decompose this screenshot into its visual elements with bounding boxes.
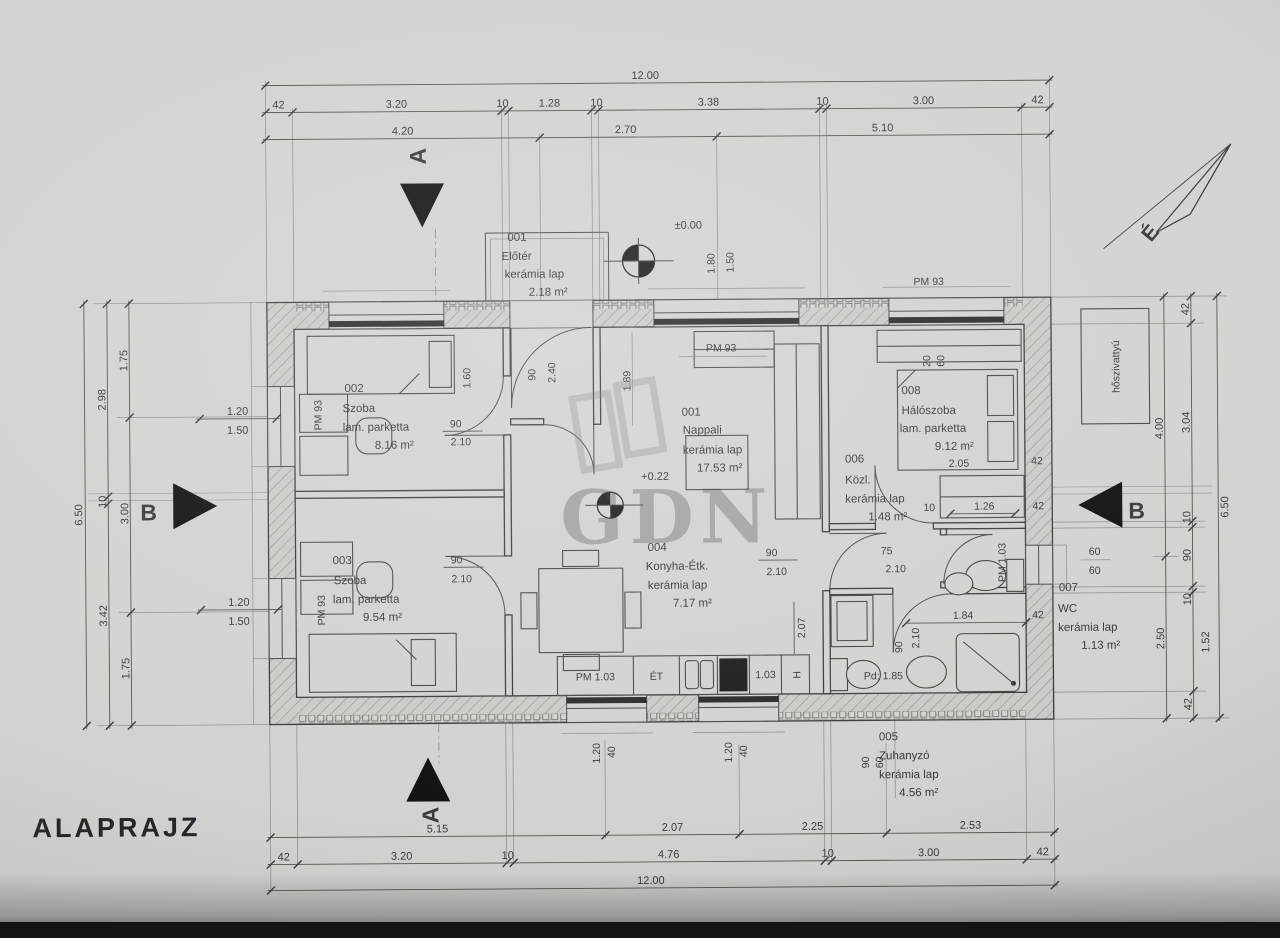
counter-pm-label: PM 1.03 — [576, 671, 615, 683]
svg-text:3.38: 3.38 — [698, 96, 720, 108]
section-marker-a-top: A — [400, 148, 445, 228]
svg-text:10: 10 — [97, 496, 109, 508]
pm93-szoba3-label: PM 93 — [316, 595, 328, 626]
svg-text:1.20: 1.20 — [591, 743, 603, 764]
svg-text:1.28: 1.28 — [539, 98, 561, 110]
svg-text:WC: WC — [1058, 603, 1077, 615]
svg-text:4.00: 4.00 — [1154, 418, 1166, 440]
room-label-wc: 007 WC kerámia lap 1.13 m² — [1058, 582, 1121, 652]
svg-text:6.50: 6.50 — [73, 504, 85, 526]
svg-text:60: 60 — [1089, 546, 1101, 558]
counter-pm2-label: 1.03 — [755, 669, 776, 681]
svg-text:42: 42 — [1037, 846, 1049, 858]
north-label: É — [1137, 221, 1164, 246]
svg-text:3.20: 3.20 — [386, 99, 408, 111]
svg-text:2.50: 2.50 — [1155, 628, 1167, 650]
svg-text:1.48 m²: 1.48 m² — [868, 511, 907, 523]
svg-text:kerámia lap: kerámia lap — [879, 769, 939, 781]
svg-text:42: 42 — [1031, 94, 1043, 106]
section-marker-b-left: B — [140, 483, 217, 530]
svg-text:kerámia lap: kerámia lap — [845, 493, 905, 505]
svg-text:Közl.: Közl. — [845, 474, 871, 486]
svg-text:Szoba: Szoba — [334, 575, 367, 587]
window-bottom-konyha-1 — [561, 695, 653, 734]
svg-text:2.18 m²: 2.18 m² — [529, 286, 568, 298]
svg-text:5.15: 5.15 — [427, 823, 449, 835]
svg-text:42: 42 — [1180, 303, 1192, 315]
heat-pump: hőszivattyú — [1081, 308, 1150, 423]
svg-text:1.75: 1.75 — [118, 350, 130, 372]
section-marker-a-bottom: A — [406, 757, 450, 823]
svg-text:60: 60 — [874, 756, 886, 768]
svg-text:40: 40 — [738, 745, 750, 757]
room-label-eloter: 001 Előtér kerámia lap 2.18 m² — [501, 232, 568, 299]
svg-text:20: 20 — [921, 355, 933, 367]
svg-text:lam. parketta: lam. parketta — [343, 422, 410, 434]
svg-text:10: 10 — [496, 98, 508, 110]
pm93-szoba2-label: PM 93 — [313, 400, 325, 431]
svg-text:1.84: 1.84 — [953, 610, 974, 622]
svg-text:Konyha-Étk.: Konyha-Étk. — [646, 560, 709, 573]
svg-text:10: 10 — [816, 96, 828, 108]
svg-text:5.10: 5.10 — [872, 122, 894, 134]
window-right-wc — [1026, 545, 1067, 584]
svg-text:90: 90 — [860, 756, 872, 768]
svg-text:9.12 m²: 9.12 m² — [935, 441, 974, 453]
window-top-szoba2 — [323, 290, 450, 329]
room-label-zuhanyzo: 005 Zuhanyzó kerámia lap 4.56 m² — [879, 731, 939, 799]
svg-text:1.50: 1.50 — [724, 252, 736, 273]
stove-icon — [719, 658, 747, 691]
svg-text:42: 42 — [1031, 455, 1043, 467]
svg-text:1.13 m²: 1.13 m² — [1081, 640, 1120, 652]
svg-text:2.10: 2.10 — [766, 566, 787, 578]
svg-text:1.20: 1.20 — [227, 406, 249, 418]
svg-text:lam. parketta: lam. parketta — [900, 423, 967, 435]
window-bottom-konyha-2 — [693, 694, 785, 733]
svg-text:005: 005 — [879, 731, 898, 743]
scan-bottom-edge — [0, 922, 1280, 938]
svg-text:lam. parketta: lam. parketta — [333, 594, 400, 606]
heat-pump-label: hőszivattyú — [1110, 340, 1122, 393]
svg-text:6.50: 6.50 — [1219, 496, 1231, 518]
svg-text:40: 40 — [606, 746, 618, 758]
section-marker-b-right: B — [1078, 481, 1145, 527]
svg-text:42: 42 — [1183, 698, 1195, 710]
floor-plan-drawing: hőszivattyú ±0.00 +0.22 001 Előtér kerám… — [0, 0, 1280, 938]
svg-text:3.00: 3.00 — [119, 503, 131, 525]
dim-bottom: 5.15 2.07 2.25 2.53 42 3.20 10 4.76 10 3… — [266, 819, 1058, 895]
svg-text:Szoba: Szoba — [343, 403, 376, 415]
svg-text:7.17 m²: 7.17 m² — [673, 598, 712, 610]
dim-top: 12.00 42 3.20 10 1.28 10 3.38 10 3.00 42… — [261, 67, 1053, 144]
counter-et-label: ÉT — [650, 670, 664, 683]
washbasin-icon — [906, 656, 946, 688]
svg-text:4.20: 4.20 — [392, 126, 414, 138]
svg-text:2.10: 2.10 — [910, 628, 922, 649]
svg-text:4.76: 4.76 — [658, 849, 680, 861]
svg-text:10: 10 — [1181, 511, 1193, 523]
svg-text:kerámia lap: kerámia lap — [1058, 622, 1118, 634]
svg-text:3.00: 3.00 — [913, 95, 935, 107]
window-top-haloszoba — [883, 286, 1010, 325]
svg-text:1.50: 1.50 — [228, 616, 250, 628]
svg-text:Hálószoba: Hálószoba — [902, 405, 957, 417]
pd-label: Pd: 1.85 — [864, 670, 903, 682]
svg-text:3.20: 3.20 — [391, 851, 413, 863]
svg-text:Nappali: Nappali — [683, 424, 722, 436]
level-marker-entry: ±0.00 — [603, 220, 702, 285]
svg-text:42: 42 — [1032, 609, 1044, 621]
svg-text:90: 90 — [450, 418, 462, 430]
svg-text:42: 42 — [1032, 500, 1044, 512]
svg-text:1.80: 1.80 — [705, 253, 717, 274]
svg-text:006: 006 — [845, 453, 864, 465]
svg-text:10: 10 — [1182, 593, 1194, 605]
svg-text:10: 10 — [822, 848, 834, 860]
svg-text:001: 001 — [507, 232, 526, 244]
svg-text:1.52: 1.52 — [1200, 631, 1212, 653]
svg-text:3.04: 3.04 — [1181, 411, 1193, 433]
svg-text:A: A — [417, 807, 443, 824]
svg-text:75: 75 — [881, 545, 893, 557]
svg-text:10: 10 — [923, 502, 935, 514]
svg-text:90: 90 — [1182, 549, 1194, 561]
watermark-text: GDN — [560, 474, 774, 561]
svg-text:Zuhanyzó: Zuhanyzó — [879, 750, 930, 762]
counter-h-label: H — [791, 671, 803, 679]
svg-text:3.42: 3.42 — [98, 605, 110, 627]
svg-text:2.10: 2.10 — [885, 563, 906, 575]
svg-text:60: 60 — [935, 355, 947, 367]
svg-text:1.50: 1.50 — [227, 425, 249, 437]
svg-text:2.10: 2.10 — [451, 573, 472, 585]
svg-text:4.56 m²: 4.56 m² — [899, 787, 938, 799]
window-top-nappali — [648, 288, 805, 327]
svg-text:003: 003 — [333, 555, 352, 567]
svg-text:10: 10 — [590, 97, 602, 109]
page-title: ALAPRAJZ — [32, 812, 200, 843]
scanned-floor-plan-sheet: hőszivattyú ±0.00 +0.22 001 Előtér kerám… — [0, 0, 1280, 938]
svg-text:2.10: 2.10 — [451, 436, 472, 448]
svg-text:2.53: 2.53 — [960, 820, 982, 832]
washbasin-icon — [945, 573, 973, 595]
svg-text:007: 007 — [1059, 582, 1078, 594]
svg-text:2.40: 2.40 — [546, 362, 558, 383]
svg-text:2.25: 2.25 — [802, 821, 824, 833]
svg-text:2.70: 2.70 — [615, 124, 637, 136]
pm103-bath-label: PM 1.03 — [997, 543, 1009, 582]
svg-text:kerámia lap: kerámia lap — [505, 269, 565, 281]
svg-text:1.75: 1.75 — [120, 658, 132, 680]
window-left-szoba2 — [251, 386, 295, 466]
svg-text:B: B — [140, 499, 157, 525]
level-zero-label: ±0.00 — [675, 220, 703, 232]
svg-text:001: 001 — [682, 407, 701, 419]
svg-text:12.00: 12.00 — [631, 70, 659, 82]
svg-text:42: 42 — [272, 99, 284, 111]
svg-text:002: 002 — [344, 383, 363, 395]
svg-text:90: 90 — [893, 641, 905, 653]
svg-text:Előtér: Előtér — [501, 251, 531, 263]
svg-text:2.05: 2.05 — [949, 458, 970, 470]
pm93-living-label: PM 93 — [706, 342, 737, 354]
svg-text:2.07: 2.07 — [796, 617, 808, 638]
svg-text:kerámia lap: kerámia lap — [648, 580, 708, 592]
svg-text:008: 008 — [901, 385, 920, 397]
svg-text:A: A — [405, 148, 431, 165]
pm93-top-label: PM 93 — [913, 276, 944, 288]
svg-text:17.53 m²: 17.53 m² — [697, 462, 743, 474]
svg-text:90: 90 — [526, 369, 538, 381]
svg-text:kerámia lap: kerámia lap — [683, 444, 743, 456]
north-arrow-icon: É — [1103, 144, 1232, 249]
svg-text:1.20: 1.20 — [228, 597, 250, 609]
svg-text:12.00: 12.00 — [637, 875, 665, 887]
svg-text:3.00: 3.00 — [918, 847, 940, 859]
svg-text:8.16 m²: 8.16 m² — [375, 440, 414, 452]
svg-text:1.20: 1.20 — [723, 742, 735, 763]
svg-text:2.98: 2.98 — [96, 389, 108, 411]
svg-text:B: B — [1128, 497, 1145, 523]
svg-text:1.26: 1.26 — [974, 501, 995, 513]
svg-text:10: 10 — [502, 850, 514, 862]
svg-text:9.54 m²: 9.54 m² — [363, 612, 402, 624]
svg-text:90: 90 — [451, 554, 463, 566]
window-left-szoba3 — [253, 578, 297, 658]
svg-text:1.60: 1.60 — [461, 368, 473, 389]
svg-text:42: 42 — [278, 851, 290, 863]
svg-text:2.07: 2.07 — [662, 822, 684, 834]
svg-text:60: 60 — [1089, 565, 1101, 577]
